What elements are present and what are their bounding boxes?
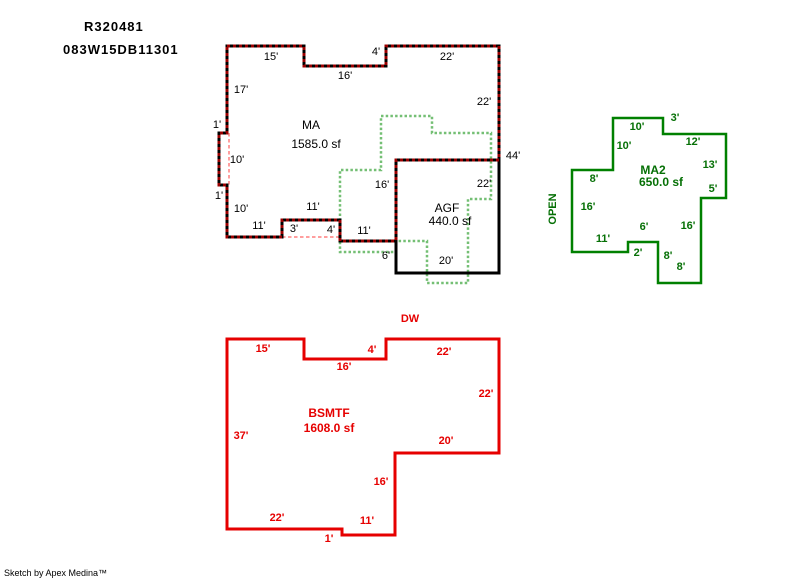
ma2-dimension-label: 3' [671,112,680,124]
ma-dimension-label: 6' [382,250,390,262]
ma2-dimension-label: 5' [709,183,718,195]
ma-dimension-label: 1' [215,190,223,202]
ma-dimension-label: 1' [213,119,221,131]
ma-dimension-label: 4' [327,224,335,236]
ma2-dimension-label: 12' [686,136,701,148]
bsmtf-dimension-label: 20' [439,435,454,447]
bsmtf-dimension-label: 16' [337,361,352,373]
bsmtf-dimension-label: 37' [234,430,249,442]
agf-sqft: 440.0 sf [429,214,472,228]
bsmtf-dimension-label: 22' [270,512,285,524]
agf-name: AGF [435,201,460,215]
bsmtf-dimension-label: 4' [368,344,377,356]
ma-dimension-label: 3' [290,223,298,235]
bsmtf-name: BSMTF [308,406,349,420]
ma-dimension-label: 44' [506,150,520,162]
ma-name: MA [302,118,320,132]
sketch-canvas: MA1585.0 sf15'4'22'16'17'22'1'10'1'10'11… [0,0,800,587]
ma-dimension-label: 10' [234,203,248,215]
ma-dimension-label: 16' [338,70,352,82]
ma2-sqft: 650.0 sf [639,175,684,189]
ma2-dimension-label: 13' [703,159,718,171]
ma-dimension-label: 16' [375,179,389,191]
bsmtf-dimension-label: 1' [325,533,334,545]
bsmtf-sqft: 1608.0 sf [304,421,356,435]
ma-dimension-label: 11' [357,225,371,237]
ma2-dimension-label: 8' [664,250,673,262]
bsmtf-outline [227,339,499,535]
ma-dimension-label: 4' [372,46,380,58]
agf-dimension-label: 22' [477,178,491,190]
ma2-dimension-label: 2' [634,247,643,259]
ma-dimension-label: 22' [440,51,454,63]
ma-dimension-label: 22' [477,96,491,108]
ma-dimension-label: 15' [264,51,278,63]
bsmtf-dimension-label: 22' [479,388,494,400]
ma2-dimension-label: 10' [617,140,632,152]
bsmtf-dimension-label: 11' [360,515,375,527]
dw-label: DW [401,313,420,325]
credit-line: Sketch by Apex Medina™ [4,568,107,578]
ma2-dimension-label: 16' [681,220,696,232]
upper-floor-dotted-outline [340,116,491,283]
bsmtf-dimension-label: 15' [256,343,271,355]
ma2-dimension-label: 11' [596,233,611,245]
ma-dimension-label: 11' [306,201,320,213]
ma2-dimension-label: 10' [630,121,645,133]
agf-dimension-label: 20' [439,255,453,267]
ma2-dimension-label: 8' [677,261,686,273]
bsmtf-dimension-label: 16' [374,476,389,488]
open-label: OPEN [547,193,559,224]
ma2-dimension-label: 6' [640,221,649,233]
ma-dimension-label: 10' [230,154,244,166]
ma-dimension-label: 17' [234,84,248,96]
ma2-dimension-label: 16' [581,201,596,213]
ma2-dimension-label: 8' [590,173,599,185]
bsmtf-dimension-label: 22' [437,346,452,358]
ma-sqft: 1585.0 sf [291,137,341,151]
ma-dimension-label: 11' [252,220,266,232]
